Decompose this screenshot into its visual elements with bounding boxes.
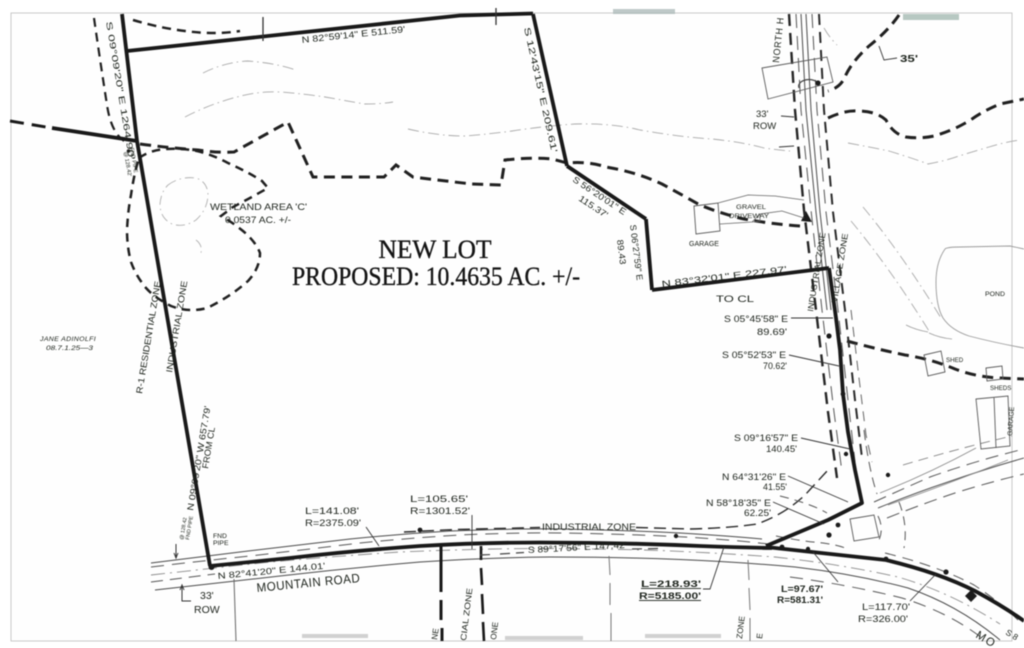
svg-text:ROW: ROW: [194, 604, 220, 616]
svg-text:PROPOSED: 10.4635 AC. +/-: PROPOSED: 10.4635 AC. +/-: [292, 262, 580, 291]
svg-text:89.69': 89.69': [757, 327, 787, 337]
svg-text:L=105.65': L=105.65': [410, 494, 468, 504]
svg-text:ROW: ROW: [753, 121, 776, 132]
svg-text:S 09°16'57" E: S 09°16'57" E: [734, 433, 798, 443]
svg-text:POND: POND: [985, 291, 1005, 298]
svg-text:R=326.00': R=326.00': [858, 614, 908, 624]
svg-text:08.7.1.25—3: 08.7.1.25—3: [46, 345, 93, 352]
svg-text:62.25': 62.25': [744, 508, 771, 518]
svg-text:GARAGE: GARAGE: [689, 241, 719, 248]
svg-text:0.0537 AC. +/-: 0.0537 AC. +/-: [225, 215, 291, 225]
svg-text:R=1301.52': R=1301.52': [410, 506, 470, 516]
svg-text:L=117.70': L=117.70': [862, 602, 910, 612]
svg-text:41.55': 41.55': [763, 482, 787, 492]
svg-text:FND: FND: [213, 533, 227, 540]
svg-text:S 05°52'53" E: S 05°52'53" E: [722, 350, 786, 360]
svg-text:SHEDS: SHEDS: [990, 385, 1011, 392]
svg-text:N 58°18'35" E: N 58°18'35" E: [706, 498, 771, 508]
svg-text:SHED: SHED: [946, 357, 964, 364]
svg-text:GRAVEL: GRAVEL: [736, 204, 766, 211]
svg-text:33': 33': [756, 109, 769, 120]
svg-text:S 05°45'58" E: S 05°45'58" E: [724, 314, 788, 324]
svg-text:L=141.08': L=141.08': [305, 506, 359, 516]
svg-text:R=2375.09': R=2375.09': [305, 518, 361, 528]
svg-text:140.45': 140.45': [766, 444, 797, 454]
svg-text:INDUSTRIAL ZONE: INDUSTRIAL ZONE: [542, 522, 636, 532]
svg-text:N 64°31'26" E: N 64°31'26" E: [722, 472, 786, 482]
svg-text:L=97.67': L=97.67': [781, 584, 823, 594]
svg-text:L=218.93': L=218.93': [641, 579, 701, 589]
svg-text:NEW LOT: NEW LOT: [379, 235, 492, 264]
svg-text:DRIVEWAY: DRIVEWAY: [729, 213, 770, 220]
svg-text:WETLAND AREA 'C': WETLAND AREA 'C': [210, 202, 307, 212]
svg-text:33': 33': [200, 590, 214, 602]
svg-text:GARAGE: GARAGE: [1007, 406, 1016, 436]
svg-text:NE: NE: [430, 627, 441, 640]
svg-text:R=581.31': R=581.31': [777, 595, 823, 605]
svg-text:JANE ADINOLFI: JANE ADINOLFI: [39, 336, 96, 343]
svg-text:R=5185.00': R=5185.00': [639, 591, 701, 601]
svg-text:35': 35': [900, 54, 918, 65]
svg-text:PIPE: PIPE: [213, 540, 229, 547]
svg-text:70.62': 70.62': [763, 361, 787, 371]
svg-text:TO CL: TO CL: [716, 294, 754, 304]
